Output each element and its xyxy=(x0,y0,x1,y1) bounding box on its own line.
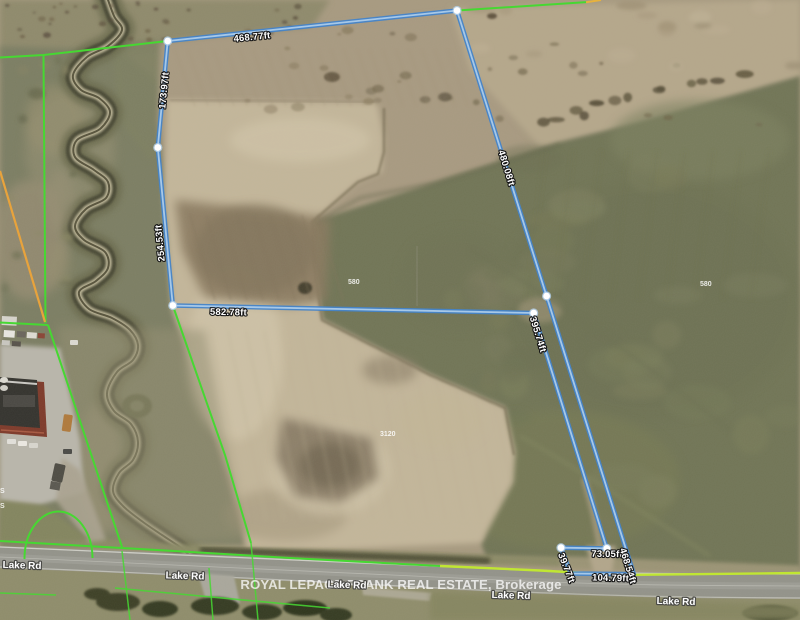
svg-text:Lake Rd: Lake Rd xyxy=(491,590,530,602)
svg-text:580: 580 xyxy=(348,279,360,286)
svg-text:104.79ft: 104.79ft xyxy=(592,573,630,585)
svg-text:3120: 3120 xyxy=(380,431,396,438)
svg-text:582.78ft: 582.78ft xyxy=(210,307,248,319)
svg-text:S: S xyxy=(0,503,5,510)
svg-text:Lake Rd: Lake Rd xyxy=(165,570,204,582)
svg-text:Lake Rd: Lake Rd xyxy=(2,560,41,572)
svg-text:580: 580 xyxy=(700,281,712,288)
svg-text:S: S xyxy=(0,488,5,495)
svg-text:Lake Rd: Lake Rd xyxy=(656,596,695,608)
svg-text:Lake Rd: Lake Rd xyxy=(327,579,366,591)
